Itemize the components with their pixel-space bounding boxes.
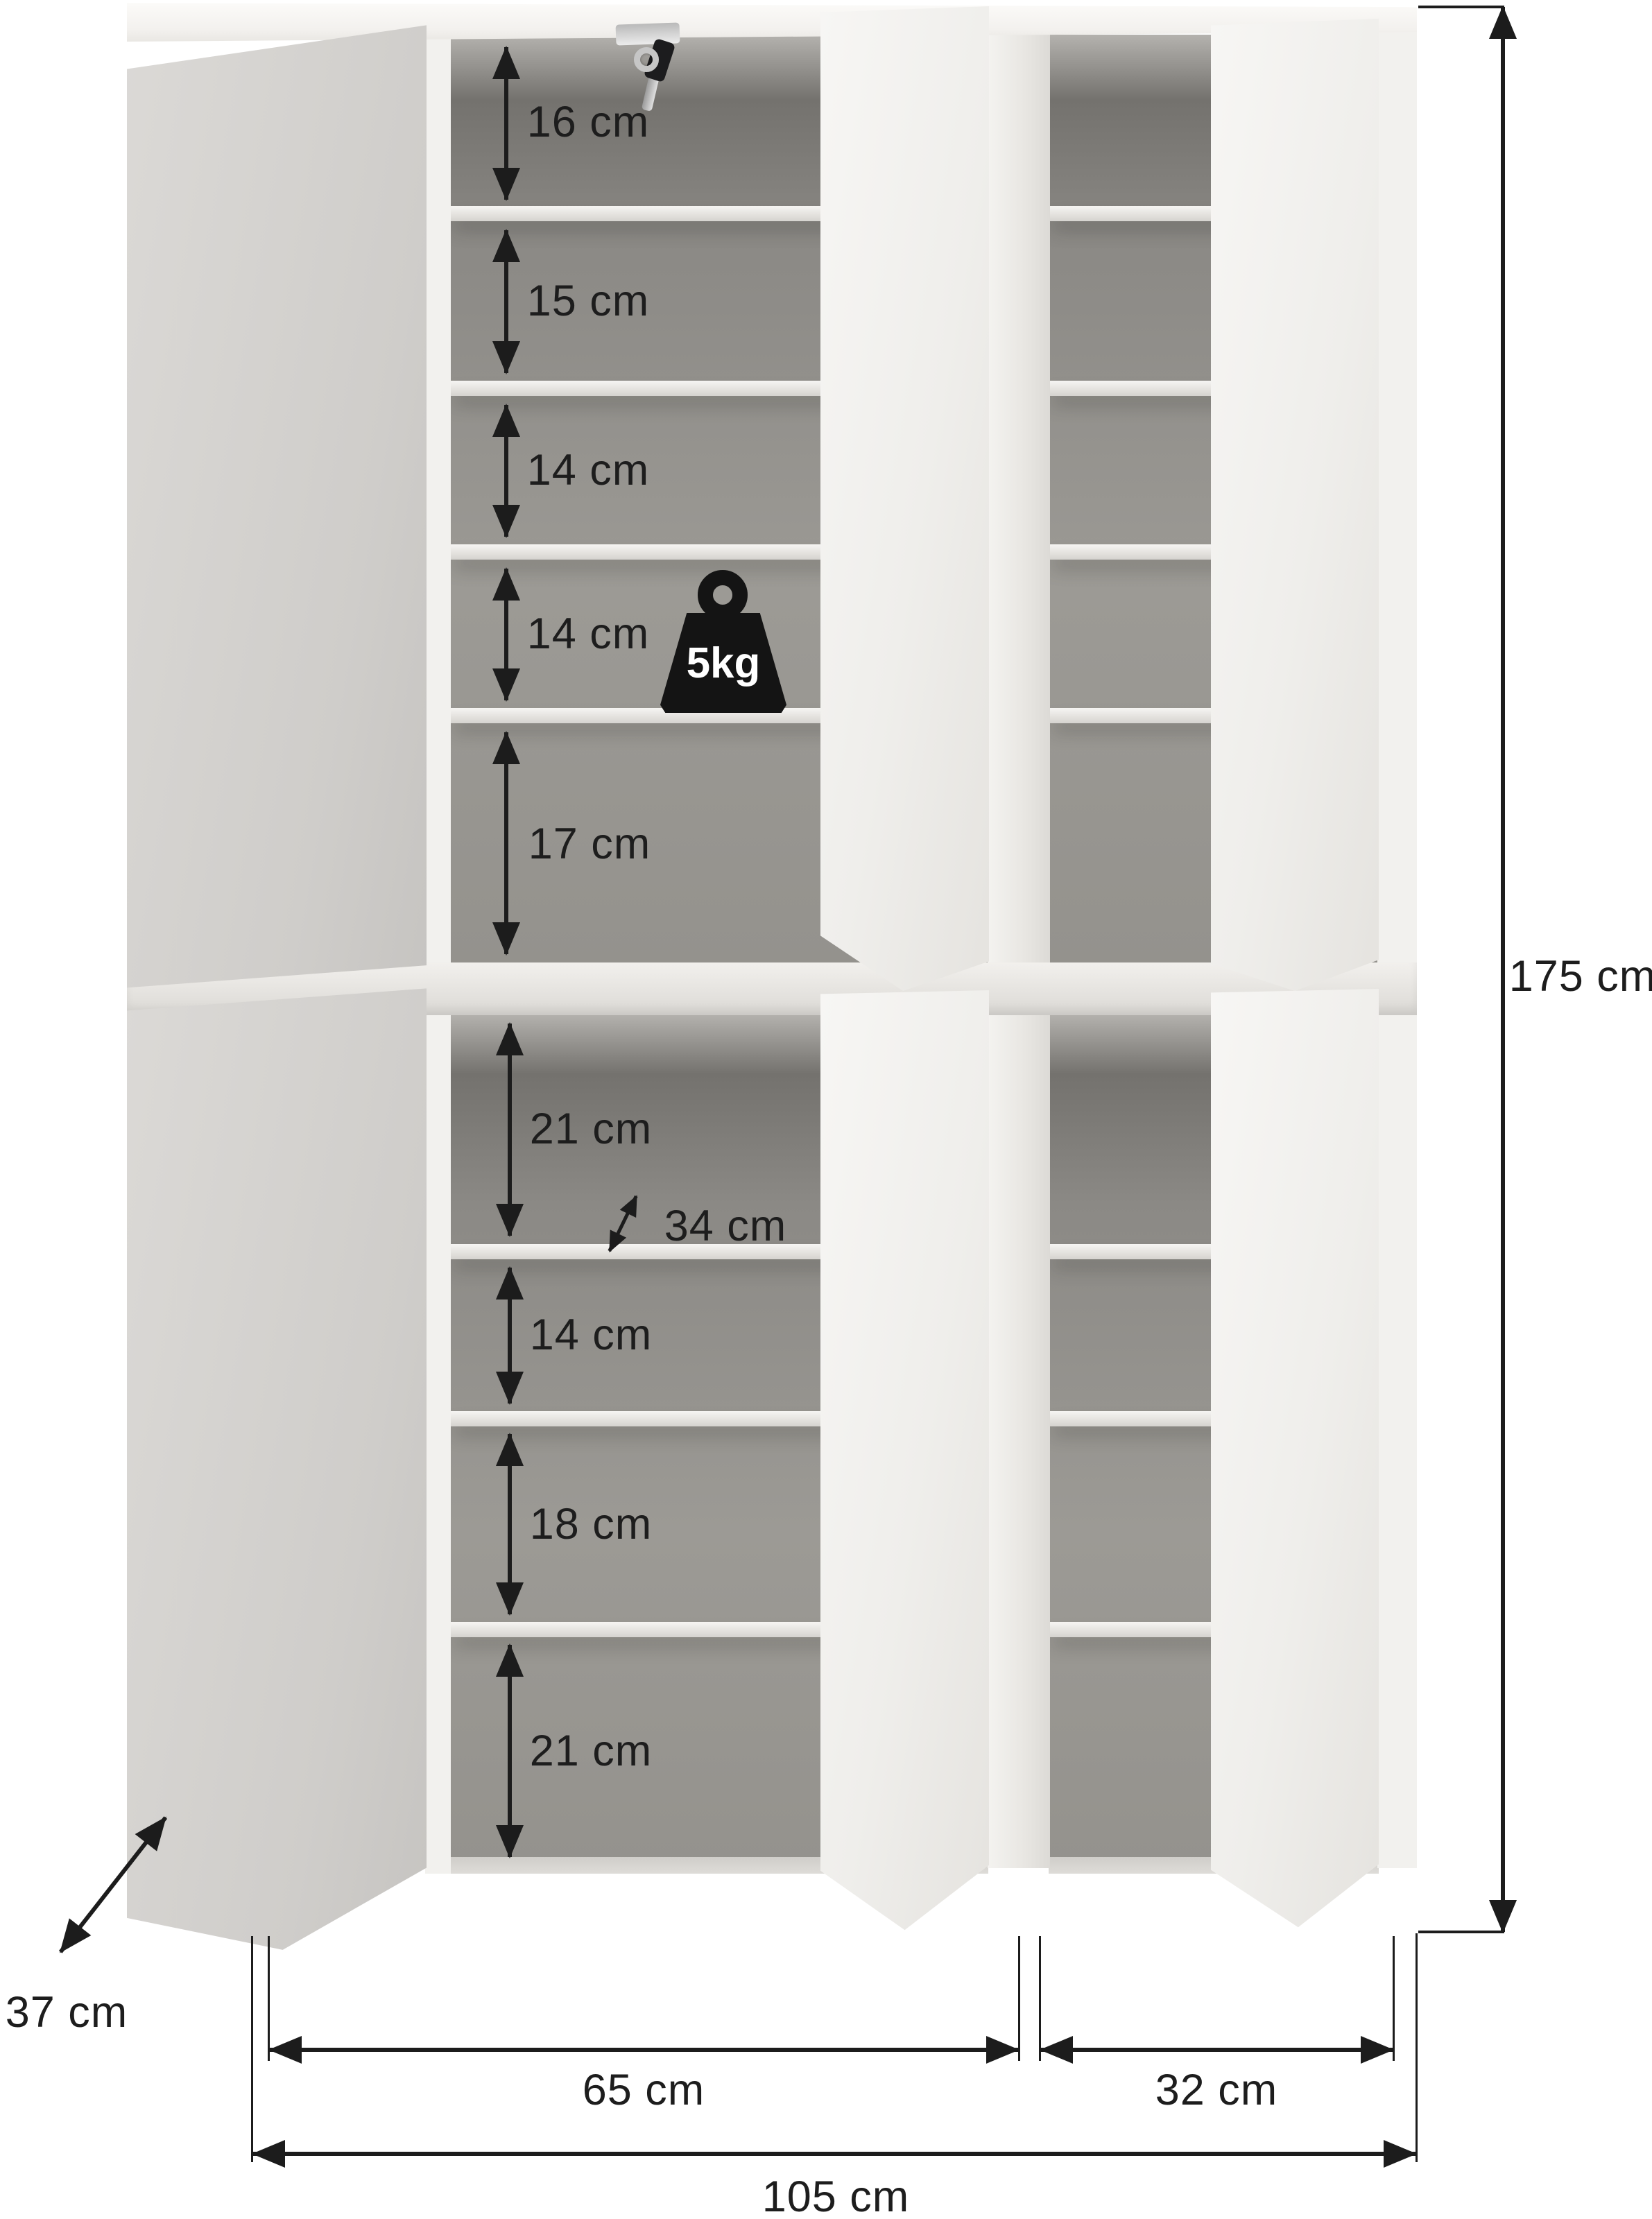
upper-right-open-door	[1211, 17, 1379, 993]
height-label: 175 cm	[1509, 951, 1652, 1001]
width-extension-line	[251, 1936, 253, 2162]
width-extension-line	[1416, 1933, 1418, 2162]
right-width-arrow	[1041, 2048, 1393, 2052]
gap-arrow	[504, 47, 508, 200]
upper-middle-open-door	[820, 6, 989, 993]
left-width-arrow	[270, 2048, 1018, 2052]
right-width-label: 32 cm	[1155, 2065, 1278, 2115]
lower-left-open-door	[127, 987, 427, 1953]
gap-arrow	[508, 1268, 512, 1404]
lower-right-open-door	[1211, 989, 1379, 1929]
gap-arrow	[504, 230, 508, 373]
gap-arrow	[508, 1645, 512, 1857]
height-arrow	[1501, 7, 1505, 1932]
gap-label: 18 cm	[530, 1499, 653, 1549]
middle-divider-panel	[988, 32, 1050, 1868]
lower-middle-open-door	[820, 990, 989, 1932]
gap-label: 14 cm	[530, 1310, 653, 1360]
gap-arrow	[504, 732, 508, 954]
gap-label: 17 cm	[528, 819, 651, 869]
gap-label: 16 cm	[527, 97, 650, 147]
total-width-arrow	[253, 2152, 1416, 2156]
gap-label: 21 cm	[530, 1726, 653, 1776]
dimension-diagram: 5kg 16 cm 15 cm 14 cm 14 cm 17 cm 21 cm …	[0, 0, 1652, 2219]
gap-arrow	[504, 405, 508, 537]
gap-label: 21 cm	[530, 1104, 653, 1154]
shelf-depth-label: 34 cm	[664, 1201, 787, 1251]
weight-capacity-label: 5kg	[660, 613, 786, 713]
gap-label: 14 cm	[527, 445, 650, 495]
left-side-wall-edge	[425, 24, 451, 1874]
total-width-label: 105 cm	[762, 2172, 910, 2219]
gap-label: 14 cm	[527, 609, 650, 659]
key-ring	[634, 47, 659, 72]
gap-arrow	[504, 569, 508, 700]
depth-label: 37 cm	[6, 1987, 128, 2037]
gap-label: 15 cm	[527, 276, 650, 326]
gap-arrow	[508, 1024, 512, 1236]
gap-arrow	[508, 1434, 512, 1614]
left-width-label: 65 cm	[583, 2065, 705, 2115]
upper-left-open-door	[127, 19, 427, 992]
weight-capacity-icon: 5kg	[660, 570, 786, 713]
right-side-wall-edge	[1377, 17, 1417, 1868]
